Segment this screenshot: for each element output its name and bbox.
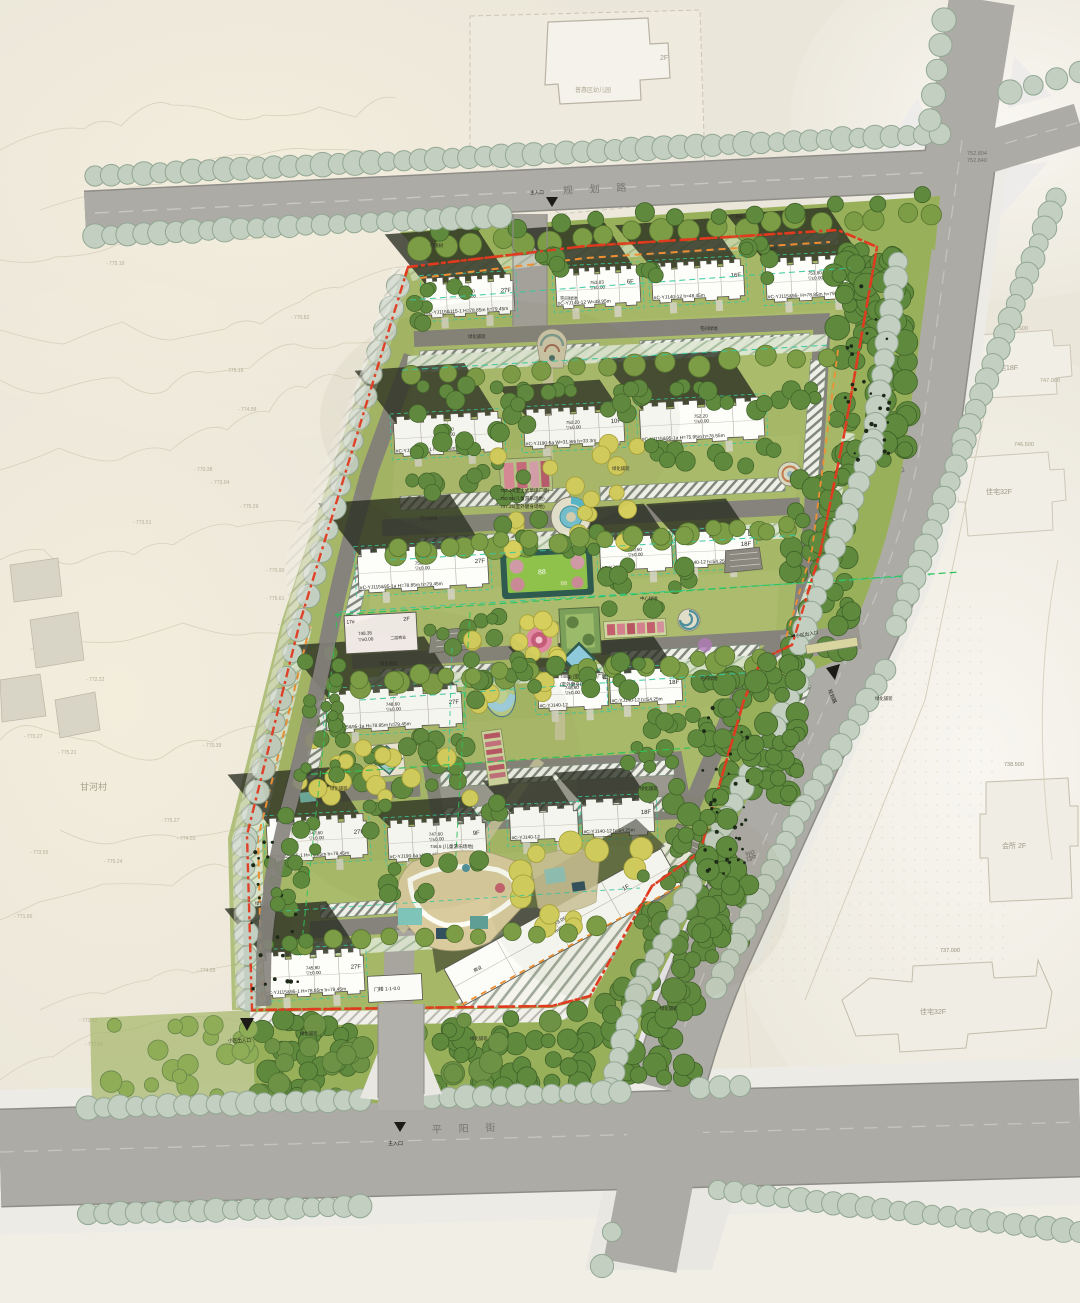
svg-text:中心绿地: 中心绿地 (640, 595, 658, 602)
svg-text:- 770.39: - 770.39 (203, 743, 222, 749)
svg-text:▽±0.00: ▽±0.00 (808, 275, 824, 281)
svg-text:27F: 27F (475, 559, 486, 566)
svg-text:▽±0.00: ▽±0.00 (694, 418, 710, 424)
svg-text:2F: 2F (660, 55, 668, 62)
svg-text:绿化铺装: 绿化铺装 (300, 1030, 318, 1037)
svg-text:行道树: 行道树 (730, 213, 744, 220)
svg-text:- 774.99: - 774.99 (238, 407, 257, 413)
svg-text:18F: 18F (741, 542, 752, 548)
svg-text:宅间绿地: 宅间绿地 (700, 675, 718, 682)
svg-text:- 775.21: - 775.21 (58, 750, 77, 756)
svg-text:- 773.55: - 773.55 (30, 850, 49, 856)
svg-text:主入口: 主入口 (388, 1140, 403, 1147)
svg-text:绿化铺装: 绿化铺装 (470, 1035, 488, 1042)
svg-text:▽±0.00: ▽±0.00 (415, 565, 431, 571)
svg-text:- 775.61: - 775.61 (266, 596, 285, 602)
svg-text:- 770.82: - 770.82 (291, 315, 310, 321)
svg-text:▽±0.00: ▽±0.00 (306, 970, 322, 976)
svg-text:绿化铺装: 绿化铺装 (875, 695, 893, 702)
svg-text:738.500: 738.500 (1004, 762, 1024, 768)
svg-text:- 770.27: - 770.27 (24, 734, 43, 740)
svg-text:- 775.24: - 775.24 (104, 859, 123, 865)
svg-text:737.000: 737.000 (940, 948, 960, 954)
svg-text:- 772.22: - 772.22 (86, 677, 105, 683)
svg-text:746.500: 746.500 (1014, 442, 1034, 448)
svg-text:行道树: 行道树 (430, 242, 444, 249)
svg-text:- 770.38: - 770.38 (194, 467, 213, 473)
svg-text:▽±0.00: ▽±0.00 (628, 552, 644, 558)
svg-text:- 773.51: - 773.51 (133, 520, 152, 526)
svg-text:- 775.27: - 775.27 (161, 818, 180, 824)
svg-text:普惠区幼儿园: 普惠区幼儿园 (575, 86, 611, 94)
svg-text:27F: 27F (351, 964, 362, 971)
svg-text:- 770.90: - 770.90 (266, 568, 285, 574)
svg-text:佳宅32F: 佳宅32F (920, 1007, 946, 1016)
svg-text:- 775.16: - 775.16 (225, 368, 244, 374)
svg-text:会所 2F: 会所 2F (1002, 841, 1026, 850)
svg-text:- 771.56: - 771.56 (14, 914, 33, 920)
svg-text:小区出入口: 小区出入口 (228, 1037, 251, 1044)
svg-text:▽±0.00: ▽±0.00 (590, 284, 606, 290)
svg-text:18F: 18F (669, 680, 680, 686)
svg-text:747.000: 747.000 (1040, 378, 1060, 384)
svg-text:6F: 6F (627, 279, 635, 285)
svg-text:宅间绿地: 宅间绿地 (700, 325, 718, 332)
svg-text:752.804: 752.804 (967, 151, 987, 157)
svg-text:佳宅32F: 佳宅32F (986, 487, 1012, 496)
svg-text:88: 88 (560, 581, 568, 587)
svg-text:88: 88 (538, 569, 546, 576)
svg-text:- 775.29: - 775.29 (240, 504, 259, 510)
svg-text:主入口: 主入口 (530, 189, 544, 196)
svg-text:甘河村: 甘河村 (80, 781, 107, 792)
svg-text:- 774.09: - 774.09 (197, 968, 216, 974)
svg-text:宅间绿地: 宅间绿地 (560, 295, 578, 302)
svg-text:- 773.04: - 773.04 (211, 480, 230, 486)
svg-text:- 775.19: - 775.19 (106, 261, 125, 267)
svg-text:752.840: 752.840 (967, 158, 987, 164)
svg-text:- 774.03: - 774.03 (177, 836, 196, 842)
svg-text:▽±0.00: ▽±0.00 (565, 690, 581, 696)
